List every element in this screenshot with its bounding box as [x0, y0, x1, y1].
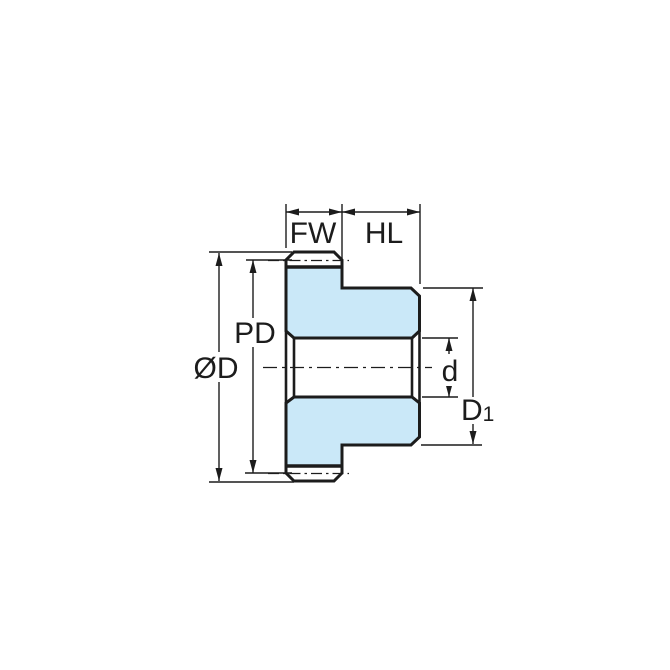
pd-arrow-top: [250, 260, 257, 273]
d-label: d: [442, 355, 459, 388]
gear-cross-section: [263, 252, 432, 481]
dimension-od: ØD: [194, 252, 295, 482]
hl-arrow-left: [342, 209, 355, 216]
gear-tooth-top: [286, 252, 342, 267]
gear-upper-section: [286, 267, 420, 338]
fw-arrow-left: [286, 209, 299, 216]
d-arrow-top: [446, 338, 453, 351]
od-label: ØD: [194, 352, 239, 385]
hl-arrow-right: [407, 209, 420, 216]
gear-lower-section: [286, 397, 420, 466]
fw-arrow-right: [329, 209, 342, 216]
fw-label: FW: [290, 217, 337, 250]
pd-label: PD: [234, 317, 276, 350]
od-arrow-top: [216, 253, 223, 266]
dimension-pd: PD: [234, 260, 292, 473]
hl-label: HL: [365, 217, 403, 250]
d1-arrow-bottom: [470, 431, 477, 444]
od-arrow-bottom: [216, 468, 223, 481]
gear-dimension-diagram: FW HL ØD PD: [0, 0, 670, 670]
diagram-canvas: FW HL ØD PD: [0, 0, 670, 670]
d1-arrow-top: [470, 288, 477, 301]
pd-arrow-bottom: [250, 460, 257, 473]
